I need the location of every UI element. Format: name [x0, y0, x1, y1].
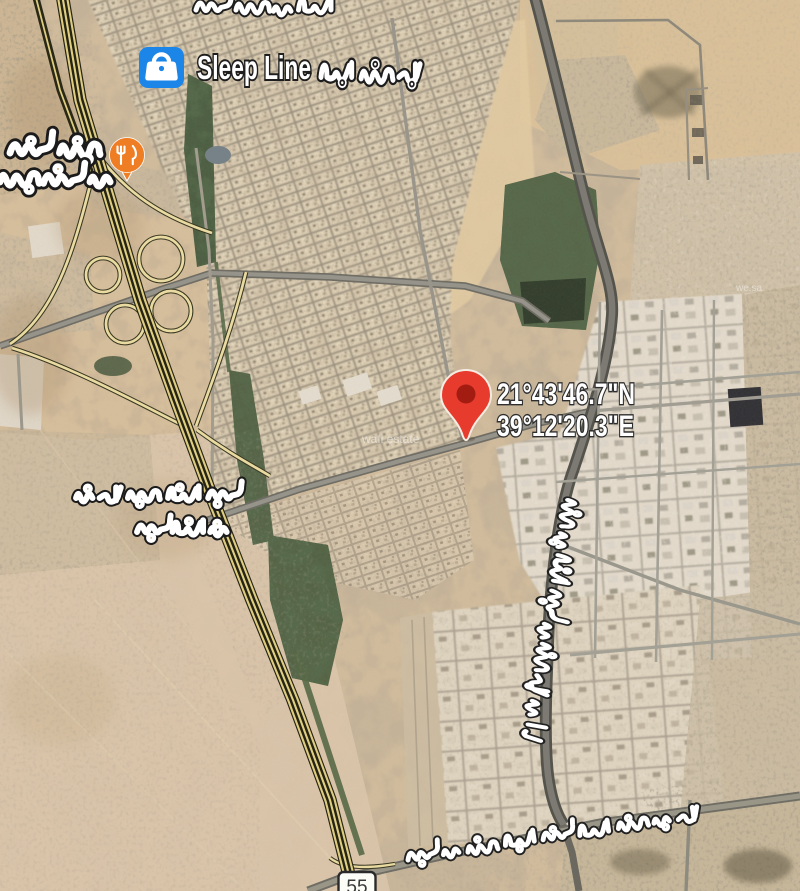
svg-text:we.sa: we.sa: [735, 283, 763, 294]
svg-text:21°43'46.7"N: 21°43'46.7"N: [497, 378, 635, 411]
svg-text:Sleep Line: Sleep Line: [197, 49, 311, 86]
svg-text:55: 55: [346, 877, 367, 891]
svg-text:wafi estate: wafi estate: [361, 432, 420, 446]
svg-text:39°12'20.3"E: 39°12'20.3"E: [497, 410, 634, 443]
